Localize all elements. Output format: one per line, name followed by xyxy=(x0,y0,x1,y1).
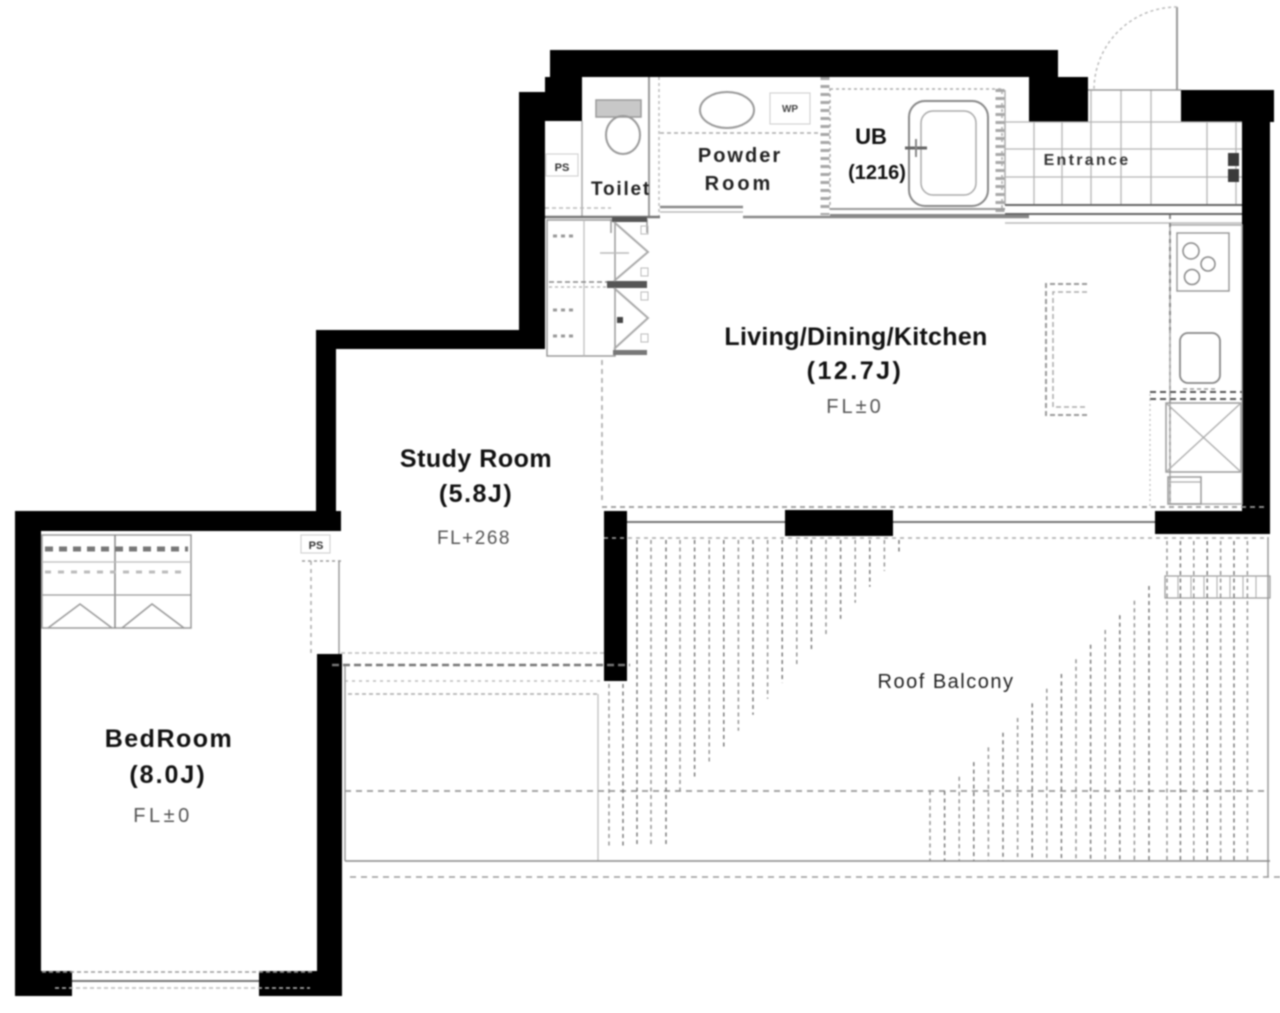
svg-text:WP: WP xyxy=(782,104,798,115)
svg-text:(5.8J): (5.8J) xyxy=(439,480,513,508)
svg-text:(8.0J): (8.0J) xyxy=(129,761,206,789)
svg-text:Room: Room xyxy=(705,173,774,195)
svg-text:FL+268: FL+268 xyxy=(437,528,511,549)
svg-text:(12.7J): (12.7J) xyxy=(807,357,904,385)
svg-text:(1216): (1216) xyxy=(848,162,906,184)
svg-text:BedRoom: BedRoom xyxy=(105,725,234,753)
svg-text:Powder: Powder xyxy=(698,145,782,167)
svg-text:Entrance: Entrance xyxy=(1044,152,1131,169)
svg-text:Toilet: Toilet xyxy=(591,179,651,200)
svg-text:PS: PS xyxy=(309,540,324,552)
svg-text:Study Room: Study Room xyxy=(400,445,552,473)
svg-text:FL±0: FL±0 xyxy=(133,805,192,827)
svg-text:Roof Balcony: Roof Balcony xyxy=(878,671,1015,693)
svg-text:UB: UB xyxy=(855,124,887,149)
svg-text:Living/Dining/Kitchen: Living/Dining/Kitchen xyxy=(724,323,987,351)
svg-text:FL±0: FL±0 xyxy=(826,396,883,418)
svg-text:PS: PS xyxy=(555,162,570,174)
